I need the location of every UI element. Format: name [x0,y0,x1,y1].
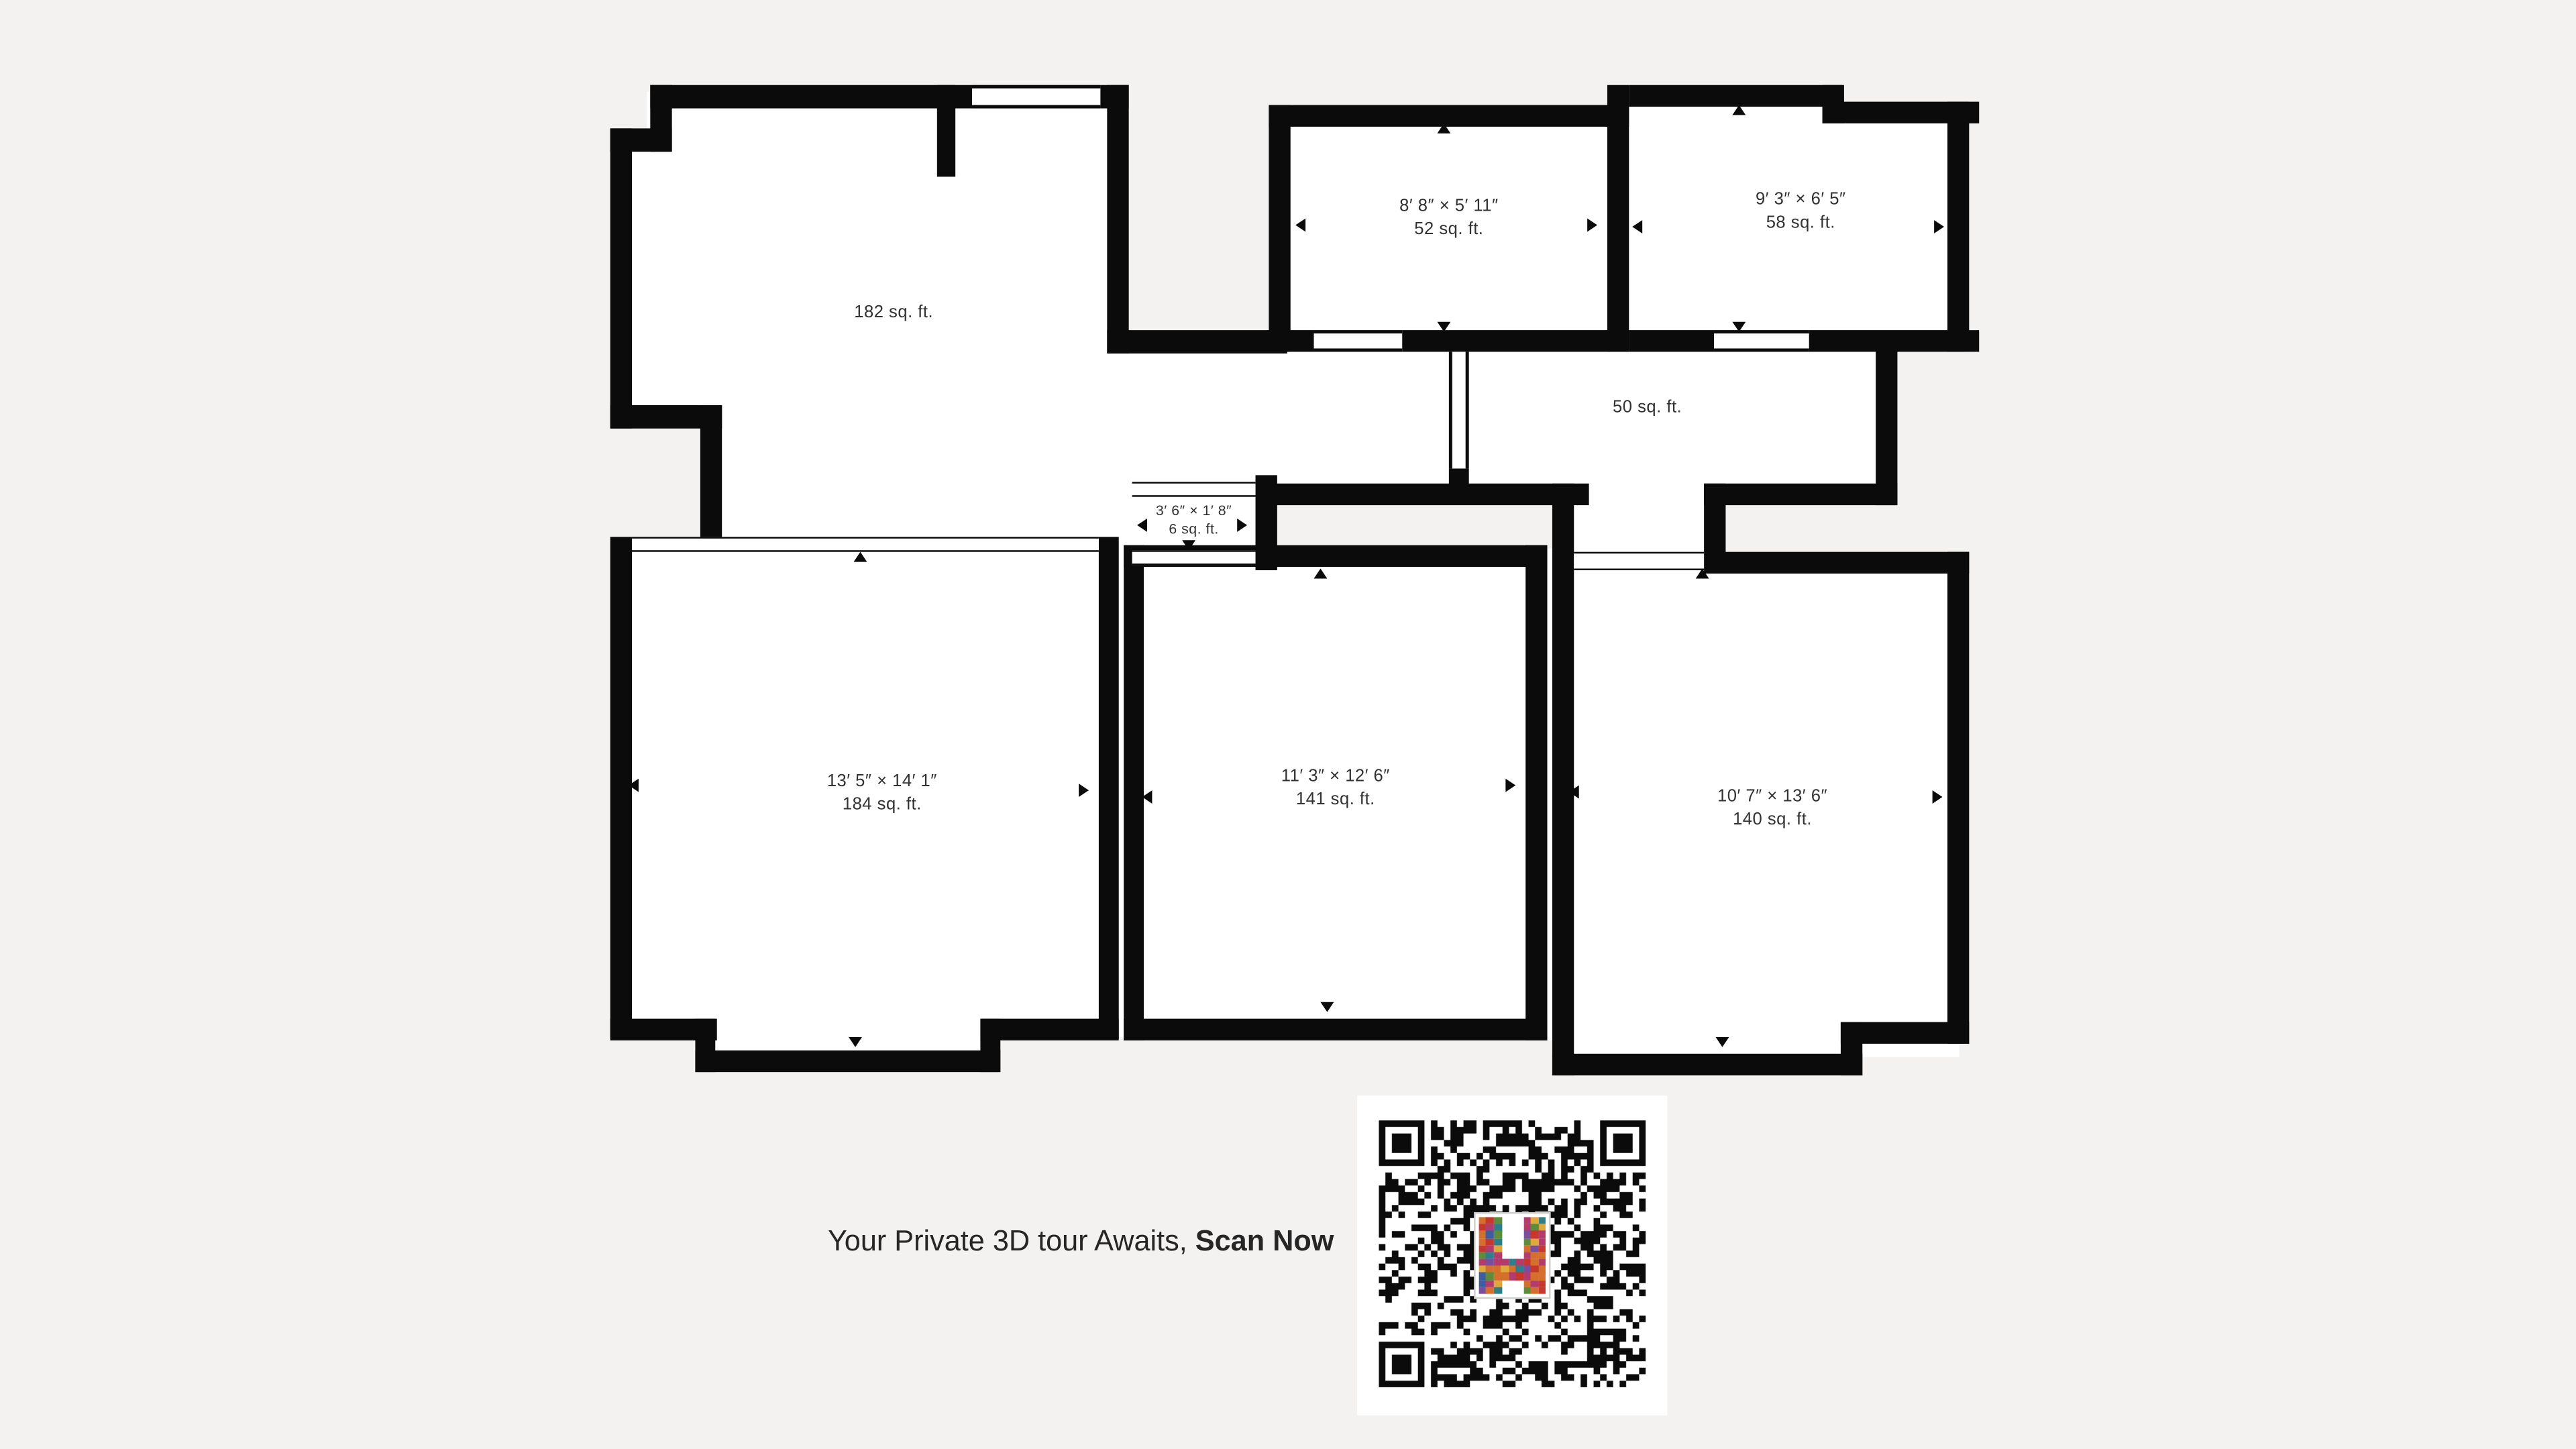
wall-segment [1256,475,1277,570]
room-area: 6 sq. ft. [1156,520,1232,538]
room-label-52: 8′ 8″ × 5′ 11″ 52 sq. ft. [1399,196,1498,241]
wall-segment [1269,105,1290,352]
logo-tile [1516,1273,1524,1280]
door-arrow-left-icon [1569,786,1579,799]
door-arrow-right-icon [1505,779,1515,792]
door-arrow-up-icon [1696,569,1709,579]
room-area: 141 sq. ft. [1281,789,1390,812]
room-area: 50 sq. ft. [1613,397,1682,420]
wall-segment [1552,484,1574,1075]
window-opening [1449,352,1469,468]
cta-text: Your Private 3D tour Awaits, Scan Now [717,1222,1334,1260]
room-label-58: 9′ 3″ × 6′ 5″ 58 sq. ft. [1756,189,1846,234]
door-arrow-right-icon [1237,519,1247,532]
wall-segment [1607,85,1629,352]
door-arrow-left-icon [1632,220,1642,233]
room-area: 58 sq. ft. [1756,212,1846,235]
door-arrow-down-icon [1320,1002,1334,1012]
wall-segment [1259,484,1589,505]
door-arrow-down-icon [849,1037,862,1047]
window-opening [1714,330,1809,352]
room-label-6: 3′ 6″ × 1′ 8″ 6 sq. ft. [1156,502,1232,539]
wall-segment [695,1051,1000,1072]
room-dims: 13′ 5″ × 14′ 1″ [827,771,937,794]
room-dims: 3′ 6″ × 1′ 8″ [1156,502,1232,520]
room-area: 140 sq. ft. [1717,808,1827,831]
window-opening [632,537,1099,551]
wall-segment [1552,1054,1862,1075]
floor-plan-page: 182 sq. ft. 8′ 8″ × 5′ 11″ 52 sq. ft. 9′… [0,0,2576,1449]
brand-logo-tiles [1479,1217,1546,1293]
room-label-140: 10′ 7″ × 13′ 6″ 140 sq. ft. [1717,786,1827,831]
wall-segment [1876,342,1897,506]
logo-tile [1487,1287,1495,1294]
qr-code [1357,1095,1667,1415]
window-opening [1574,552,1704,570]
wall-segment [1704,552,1969,574]
door-arrow-up-icon [854,552,867,562]
wall-segment [700,405,722,550]
wall-segment [1124,1019,1547,1040]
wall-segment [1947,552,1969,1044]
cta-line2: Scan Now [1195,1224,1334,1257]
logo-tile [1523,1287,1532,1294]
door-arrow-left-icon [629,779,639,792]
window-opening [972,85,1100,109]
room-area: 52 sq. ft. [1399,219,1498,241]
room-label-182: 182 sq. ft. [854,302,933,325]
door-arrow-down-icon [1182,540,1195,550]
room-floor [707,400,1117,554]
wall-segment [1629,85,1842,107]
door-arrow-right-icon [1933,790,1943,804]
wall-segment [1124,545,1144,1040]
logo-tile [1538,1287,1546,1294]
window-opening [1132,482,1256,496]
wall-segment [610,128,632,428]
window-opening [1132,550,1256,565]
logo-tile [1494,1287,1502,1294]
logo-tile [1531,1287,1539,1294]
door-arrow-right-icon [1934,220,1944,233]
door-arrow-left-icon [1137,519,1147,532]
room-dims: 10′ 7″ × 13′ 6″ [1717,786,1827,809]
wall-segment [937,85,955,177]
logo-tile [1509,1273,1517,1280]
door-arrow-left-icon [1295,219,1305,232]
room-label-141: 11′ 3″ × 12′ 6″ 141 sq. ft. [1281,766,1390,811]
door-arrow-up-icon [1314,569,1328,579]
room-dims: 11′ 3″ × 12′ 6″ [1281,766,1390,789]
wall-segment [1525,545,1547,1040]
room-area: 184 sq. ft. [827,794,937,816]
wall-segment [1099,537,1119,1038]
door-arrow-right-icon [1079,784,1089,797]
room-floor [1107,350,1470,487]
wall-segment [1704,484,1897,505]
room-floor [617,130,1118,409]
door-arrow-down-icon [1732,322,1746,332]
logo-tile [1479,1287,1487,1294]
door-arrow-left-icon [1142,790,1152,804]
wall-segment [980,1019,1118,1040]
wall-segment [1107,330,1287,354]
door-arrow-right-icon [1587,219,1597,232]
wall-segment [1841,1022,1969,1044]
window-opening [1314,330,1403,352]
door-arrow-up-icon [1437,123,1450,133]
room-label-184: 13′ 5″ × 14′ 1″ 184 sq. ft. [827,771,937,816]
cta-line1: Your Private 3D tour Awaits, [828,1224,1187,1257]
room-dims: 8′ 8″ × 5′ 11″ [1399,196,1498,219]
room-label-50: 50 sq. ft. [1613,397,1682,420]
room-dims: 9′ 3″ × 6′ 5″ [1756,189,1846,212]
door-arrow-down-icon [1716,1037,1729,1047]
logo-tile [1501,1273,1509,1280]
brand-logo [1474,1212,1550,1299]
door-arrow-down-icon [1437,322,1450,332]
wall-segment [1107,85,1128,354]
wall-segment [1947,102,1969,352]
room-area: 182 sq. ft. [854,302,933,325]
door-arrow-up-icon [1732,105,1746,115]
